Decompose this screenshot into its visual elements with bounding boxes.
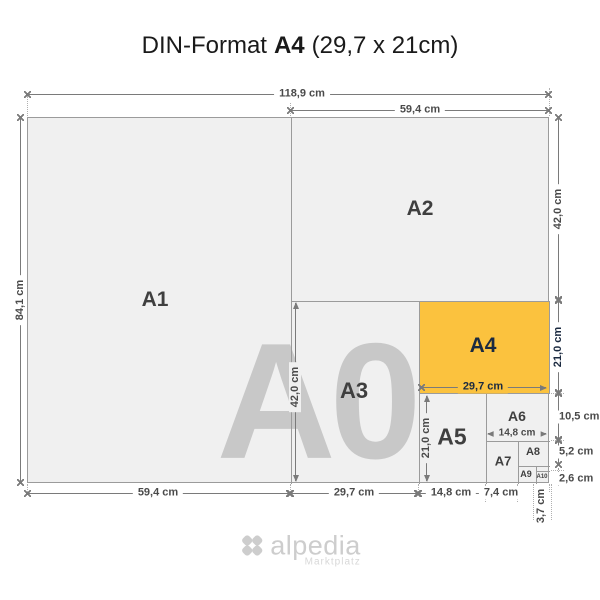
dim-label-a4-height: 21,0 cm xyxy=(552,322,564,372)
dim-label-a0-width: 118,9 cm xyxy=(274,88,330,101)
extension-line xyxy=(551,484,552,520)
dim-label-a7-width: 7,4 cm xyxy=(479,487,523,500)
panel-label-a4: A4 xyxy=(470,334,497,358)
panel-label-a7: A7 xyxy=(495,454,512,469)
dim-label-a2-height: 42,0 cm xyxy=(552,184,564,234)
panel-label-a6: A6 xyxy=(508,408,526,424)
extension-line xyxy=(533,484,534,520)
divider-a10-top xyxy=(536,471,550,472)
divider-a5-a6 xyxy=(486,394,487,484)
extension-line xyxy=(27,96,28,116)
dim-label-a5-width: 14,8 cm xyxy=(426,487,476,500)
title-format: A4 xyxy=(274,32,305,60)
dim-label-a1-width: 59,4 cm xyxy=(133,487,183,500)
panel-label-a10: A10 xyxy=(536,474,547,480)
page-title: DIN-Format A4 (29,7 x 21cm) xyxy=(0,32,600,60)
panel-label-a9: A9 xyxy=(520,469,532,479)
dim-label-a2-width: 59,4 cm xyxy=(395,104,445,117)
divider-a7-a8 xyxy=(518,441,519,484)
panel-label-a8: A8 xyxy=(526,446,540,458)
dim-label-a10-height: 2,6 cm xyxy=(554,473,598,486)
dim-label-a9-width: 3,7 cm xyxy=(535,484,547,528)
logo-subtitle: Marktplatz xyxy=(305,557,361,568)
dim-label-a6-height: 10,5 cm xyxy=(554,411,600,424)
a0-sheet: A0 xyxy=(27,117,549,483)
panel-label-a1: A1 xyxy=(142,288,169,312)
alpedia-logo: alpedia Marktplatz xyxy=(239,533,361,568)
din-format-diagram: DIN-Format A4 (29,7 x 21cm) A0 A1 A2 A3 … xyxy=(0,0,600,600)
dim-label-a3-height-inner: 42,0 cm xyxy=(289,362,301,412)
logo-name: alpedia xyxy=(270,533,361,559)
panel-label-a3: A3 xyxy=(340,378,368,404)
dim-label-a8-height: 5,2 cm xyxy=(554,446,598,459)
dim-label-a6-width-inner: 14,8 cm xyxy=(494,427,541,440)
panel-label-a2: A2 xyxy=(407,197,434,221)
dim-label-a0-height: 84,1 cm xyxy=(14,275,26,325)
a0-watermark-label: A0 xyxy=(217,319,416,484)
panel-label-a5: A5 xyxy=(437,424,466,451)
divider-a8-bottom xyxy=(518,466,550,467)
title-size: (29,7 x 21cm) xyxy=(312,32,459,60)
title-prefix: DIN-Format xyxy=(142,32,267,60)
extension-line xyxy=(549,484,550,492)
alpedia-logo-icon xyxy=(239,533,265,559)
dim-label-a4-width-inner: 29,7 cm xyxy=(458,381,508,394)
dim-label-a5-height-inner: 21,0 cm xyxy=(420,413,432,463)
dim-label-a3-width: 29,7 cm xyxy=(329,487,379,500)
